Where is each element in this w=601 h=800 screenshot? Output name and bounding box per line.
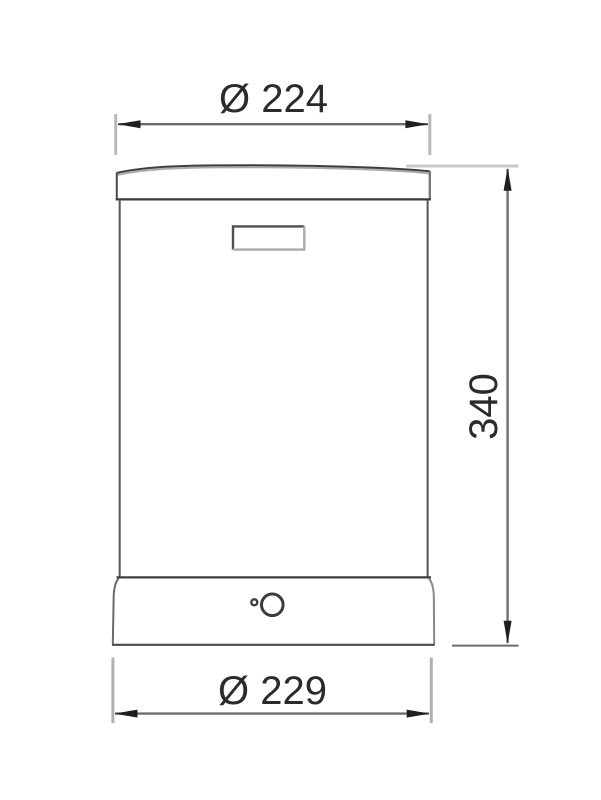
svg-text:Ø 224: Ø 224	[219, 77, 328, 121]
svg-text:Ø 229: Ø 229	[218, 669, 327, 713]
svg-text:340: 340	[462, 373, 506, 440]
